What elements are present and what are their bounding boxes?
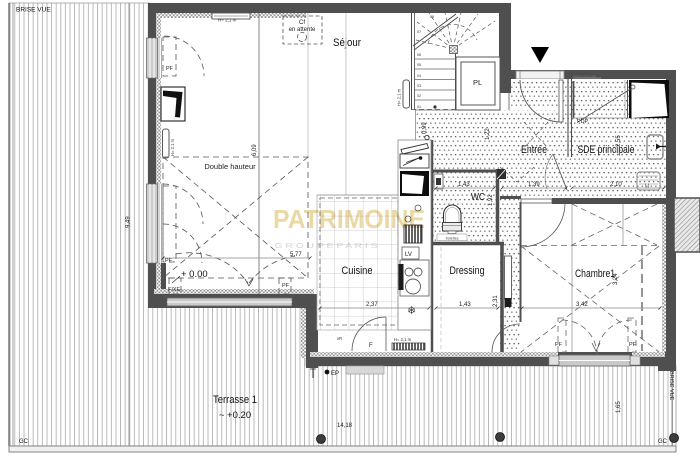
svg-text:+ 0.00: + 0.00 — [181, 269, 208, 280]
svg-text:H= 2,1 m: H= 2,1 m — [394, 337, 412, 342]
svg-text:WC: WC — [471, 192, 485, 203]
svg-text:Dressing: Dressing — [450, 265, 485, 277]
svg-text:3,24: 3,24 — [613, 273, 619, 285]
svg-text:PF: PF — [629, 342, 637, 348]
svg-text:05: 05 — [417, 63, 421, 67]
svg-text:2,55: 2,55 — [616, 135, 622, 147]
svg-text:EP: EP — [331, 371, 339, 377]
svg-text:6,09: 6,09 — [252, 144, 258, 156]
svg-text:U: U — [645, 184, 649, 190]
svg-text:GC: GC — [19, 439, 29, 445]
svg-text:0,99: 0,99 — [422, 122, 428, 134]
svg-text:03: 03 — [417, 84, 421, 88]
svg-text:2,31: 2,31 — [493, 295, 499, 307]
svg-text:06: 06 — [417, 53, 421, 57]
svg-text:Terrasse 1: Terrasse 1 — [213, 394, 257, 406]
svg-text:LV: LV — [405, 252, 412, 258]
svg-text:Toilettes: Toilettes — [445, 236, 458, 240]
svg-text:02: 02 — [417, 94, 421, 98]
svg-text:PF: PF — [282, 283, 290, 289]
svg-text:PF: PF — [166, 66, 174, 72]
svg-text:H= 2,1 m: H= 2,1 m — [170, 138, 175, 156]
svg-text:H= 2,1 m: H= 2,1 m — [397, 88, 402, 106]
svg-text:2,10: 2,10 — [610, 182, 622, 188]
svg-text:GC: GC — [658, 439, 668, 445]
svg-text:Double hauteur: Double hauteur — [204, 162, 256, 171]
svg-text:G R O U P E P A R I S: G R O U P E P A R I S — [275, 241, 378, 250]
svg-text:3,42: 3,42 — [576, 302, 588, 308]
svg-text:PF: PF — [165, 258, 173, 264]
svg-text:1,22: 1,22 — [485, 128, 491, 140]
svg-text:1,92: 1,92 — [488, 194, 494, 206]
svg-text:2,37: 2,37 — [366, 302, 378, 308]
svg-text:PDP: PDP — [577, 119, 589, 125]
svg-text:PAROI DOUCHE: PAROI DOUCHE — [573, 75, 596, 79]
svg-text:1,65: 1,65 — [616, 401, 622, 413]
svg-text:~ +0.20: ~ +0.20 — [219, 410, 251, 421]
svg-text:PATRIMOINE: PATRIMOINE — [273, 204, 425, 234]
svg-text:Cf: Cf — [299, 20, 305, 26]
svg-text:BRISE VUE: BRISE VUE — [16, 7, 51, 14]
svg-text:BRISE VUE: BRISE VUE — [668, 371, 674, 401]
svg-text:07: 07 — [417, 30, 421, 34]
svg-text:FIXE: FIXE — [168, 287, 181, 293]
svg-text:vR: vR — [337, 336, 342, 341]
svg-text:Entrée: Entrée — [521, 144, 547, 156]
svg-text:04: 04 — [417, 74, 421, 78]
svg-text:en attente: en attente — [289, 27, 316, 33]
svg-text:Chambre1: Chambre1 — [575, 268, 615, 280]
svg-text:01: 01 — [417, 105, 421, 109]
svg-text:14,18: 14,18 — [337, 423, 353, 429]
svg-text:PF: PF — [555, 342, 563, 348]
svg-text:Séjour: Séjour — [333, 37, 361, 49]
svg-text:1,39: 1,39 — [528, 182, 540, 188]
svg-text:Cuisine: Cuisine — [342, 265, 373, 277]
svg-text:9,49: 9,49 — [126, 216, 132, 228]
svg-text:5,77: 5,77 — [290, 252, 302, 258]
svg-text:H= 2,1 m: H= 2,1 m — [218, 18, 237, 23]
svg-text:F: F — [369, 343, 373, 349]
svg-text:1,43: 1,43 — [459, 302, 471, 308]
svg-text:PL: PL — [473, 78, 482, 87]
svg-text:❄: ❄ — [407, 305, 416, 317]
svg-text:SDE principale: SDE principale — [578, 144, 635, 156]
svg-text:1,43: 1,43 — [458, 182, 470, 188]
